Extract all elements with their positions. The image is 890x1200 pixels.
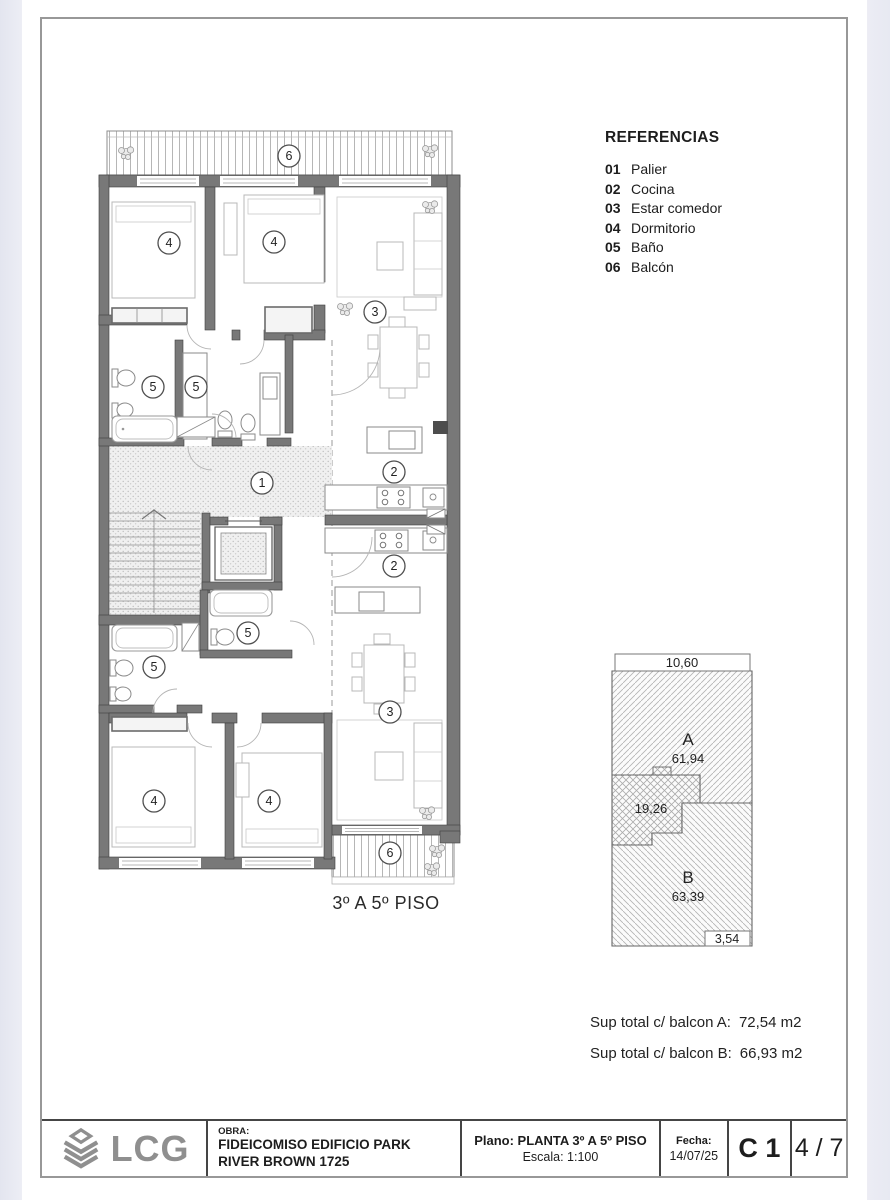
sheet-code: C 1 <box>727 1121 791 1176</box>
obra-value: FIDEICOMISO EDIFICIO PARK RIVER BROWN 17… <box>218 1137 450 1171</box>
room-marker-bedroom-top-left: 4 <box>158 232 180 254</box>
logo-text: LCG <box>111 1131 190 1167</box>
svg-text:6: 6 <box>387 846 394 860</box>
room-marker-living-top: 3 <box>364 301 386 323</box>
room-marker-balcony-bottom: 6 <box>379 842 401 864</box>
svg-text:1: 1 <box>259 476 266 490</box>
reference-item: 04Dormitorio <box>605 219 815 239</box>
room-marker-palier: 1 <box>251 472 273 494</box>
svg-text:5: 5 <box>245 626 252 640</box>
total-unit-b: Sup total c/ balcon B:66,93 m2 <box>590 1038 802 1069</box>
reference-item: 05Baño <box>605 238 815 258</box>
page-frame: 6 4 4 3 5 5 1 2 2 5 <box>40 17 848 1178</box>
unit-b-label: B <box>682 868 693 887</box>
reference-item: 03Estar comedor <box>605 199 815 219</box>
room-marker-bath-bottom-left: 5 <box>143 656 165 678</box>
floor-plan-drawing: 6 4 4 3 5 5 1 2 2 5 <box>92 125 467 887</box>
svg-text:3,54: 3,54 <box>715 932 739 946</box>
lcg-logo-icon <box>59 1127 103 1171</box>
room-marker-bedroom-top-mid: 4 <box>263 231 285 253</box>
room-marker-bath-bottom-mid: 5 <box>237 622 259 644</box>
total-unit-a: Sup total c/ balcon A:72,54 m2 <box>590 1007 802 1038</box>
room-marker-bedroom-bottom-left: 4 <box>143 790 165 812</box>
unit-a-label: A <box>682 730 694 749</box>
top-dimension-box: 10,60 <box>615 654 750 671</box>
svg-text:5: 5 <box>150 380 157 394</box>
document-page: 6 4 4 3 5 5 1 2 2 5 <box>22 0 867 1200</box>
svg-text:4: 4 <box>151 794 158 808</box>
plan-sheet: { "colors": { "wall_gray": "#787878", "p… <box>0 0 890 1200</box>
reference-item: 06Balcón <box>605 258 815 278</box>
fecha-label: Fecha: <box>661 1135 727 1147</box>
obra-cell: OBRA: FIDEICOMISO EDIFICIO PARK RIVER BR… <box>206 1121 460 1176</box>
surface-totals: Sup total c/ balcon A:72,54 m2 Sup total… <box>590 1007 802 1069</box>
plano-value: Plano: PLANTA 3º A 5º PISO <box>466 1133 655 1148</box>
unit-a-area: 61,94 <box>672 751 705 766</box>
room-marker-bath-top-mid: 5 <box>185 376 207 398</box>
svg-text:4: 4 <box>266 794 273 808</box>
fecha-value: 14/07/25 <box>661 1149 727 1163</box>
svg-text:6: 6 <box>286 149 293 163</box>
title-block: LCG OBRA: FIDEICOMISO EDIFICIO PARK RIVE… <box>42 1119 846 1176</box>
escala-value: Escala: 1:100 <box>466 1150 655 1164</box>
svg-text:2: 2 <box>391 465 398 479</box>
common-area-value: 19,26 <box>635 801 668 816</box>
svg-text:2: 2 <box>391 559 398 573</box>
room-marker-kitchen-lower: 2 <box>383 555 405 577</box>
svg-text:3: 3 <box>387 705 394 719</box>
references-title: REFERENCIAS <box>605 129 815 147</box>
room-marker-bedroom-bottom-mid: 4 <box>258 790 280 812</box>
plano-cell: Plano: PLANTA 3º A 5º PISO Escala: 1:100 <box>460 1121 659 1176</box>
unit-b-area: 63,39 <box>672 889 705 904</box>
room-marker-living-bottom: 3 <box>379 701 401 723</box>
obra-label: OBRA: <box>218 1126 450 1137</box>
reference-item: 01Palier <box>605 160 815 180</box>
svg-text:10,60: 10,60 <box>666 655 699 670</box>
svg-text:5: 5 <box>193 380 200 394</box>
room-marker-balcony-top: 6 <box>278 145 300 167</box>
floor-caption: 3º A 5º PISO <box>286 893 486 914</box>
sheet-index: 4 / 7 <box>790 1121 846 1176</box>
logo-cell: LCG <box>42 1121 206 1176</box>
elevator <box>215 521 272 580</box>
reference-item: 02Cocina <box>605 180 815 200</box>
references-legend: REFERENCIAS 01Palier 02Cocina 03Estar co… <box>605 129 815 277</box>
svg-text:3: 3 <box>372 305 379 319</box>
bottom-dimension-box: 3,54 <box>705 931 750 946</box>
svg-text:4: 4 <box>271 235 278 249</box>
room-marker-bath-top-left: 5 <box>142 376 164 398</box>
svg-text:4: 4 <box>166 236 173 250</box>
svg-text:5: 5 <box>151 660 158 674</box>
room-marker-kitchen-upper: 2 <box>383 461 405 483</box>
unit-key-diagram: 10,60 A 61,94 19,26 B 63,39 3,54 <box>605 647 760 959</box>
fecha-cell: Fecha: 14/07/25 <box>659 1121 727 1176</box>
